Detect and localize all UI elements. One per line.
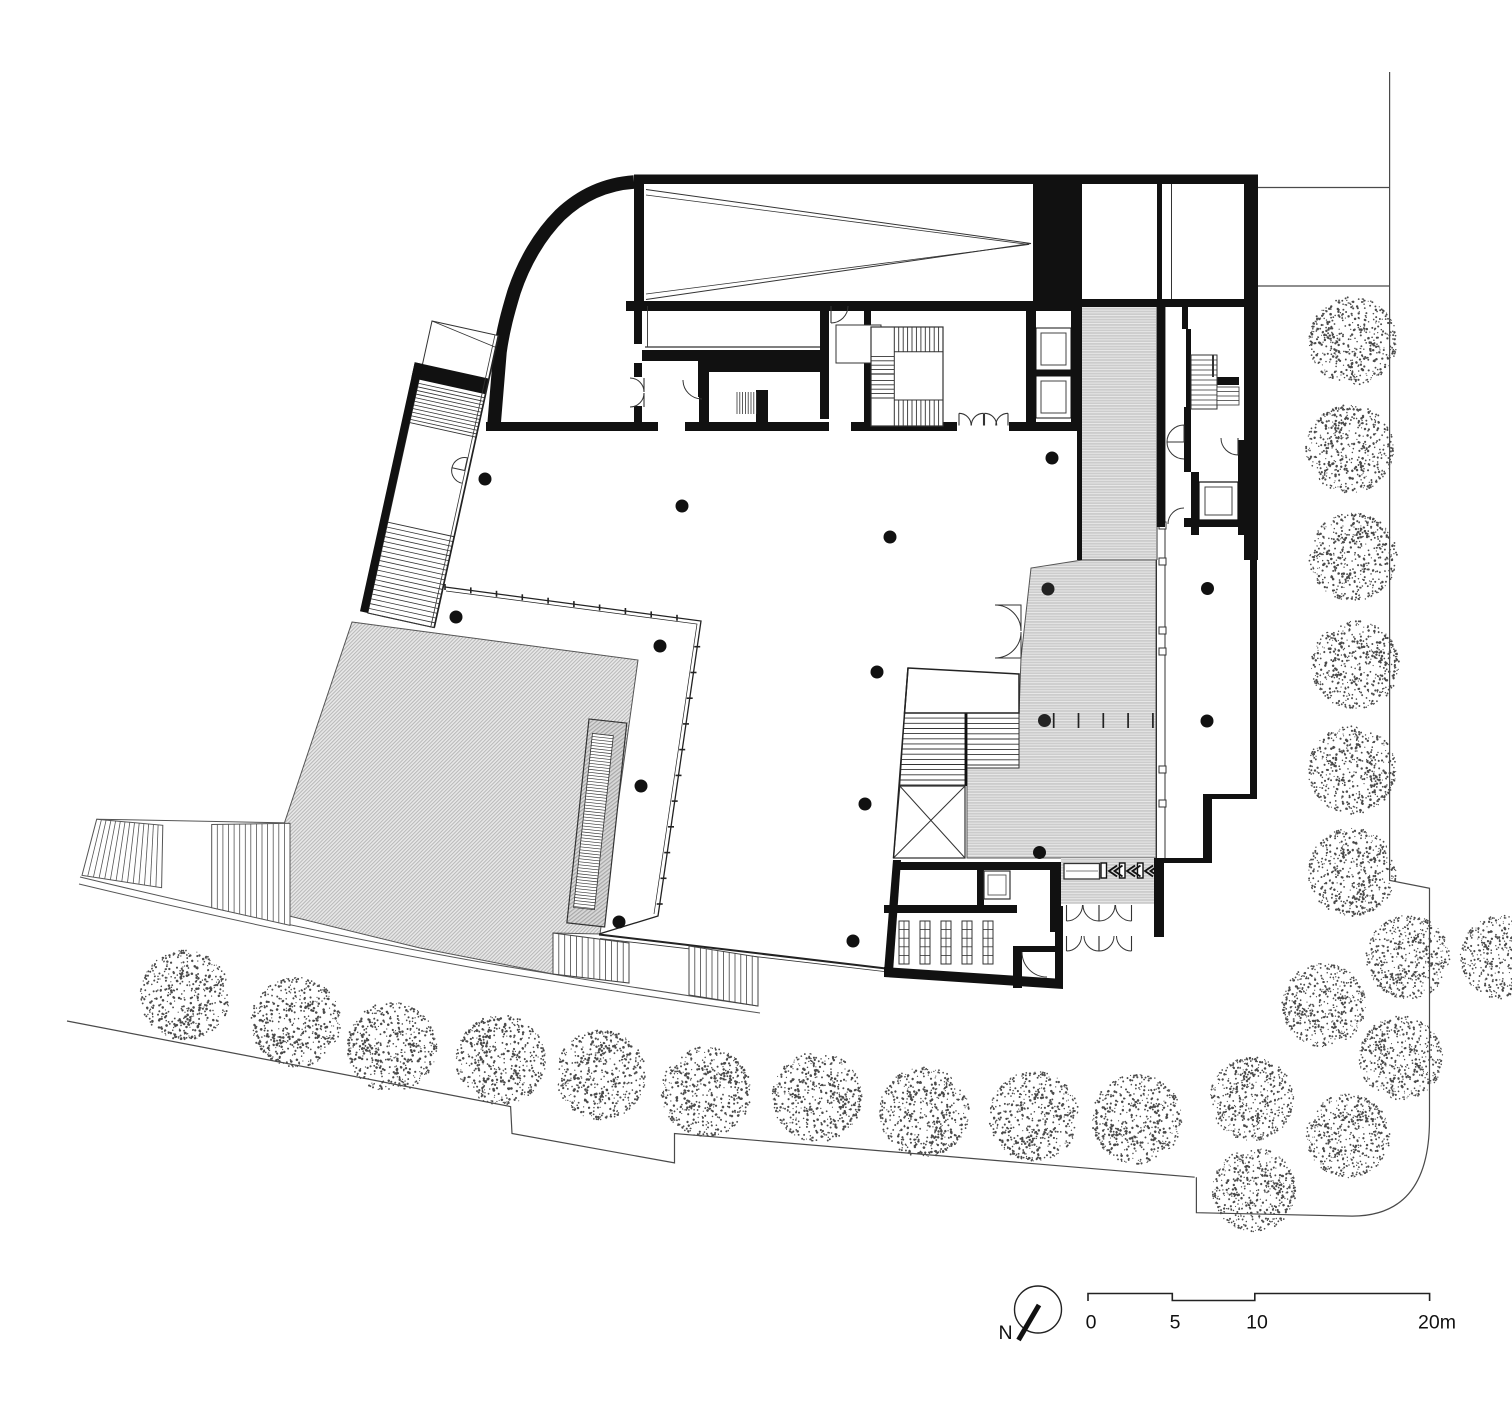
svg-text:20m: 20m bbox=[1418, 1312, 1456, 1334]
svg-text:N: N bbox=[998, 1322, 1012, 1344]
svg-text:10: 10 bbox=[1246, 1312, 1268, 1334]
svg-text:5: 5 bbox=[1170, 1312, 1181, 1334]
svg-text:0: 0 bbox=[1086, 1312, 1097, 1334]
